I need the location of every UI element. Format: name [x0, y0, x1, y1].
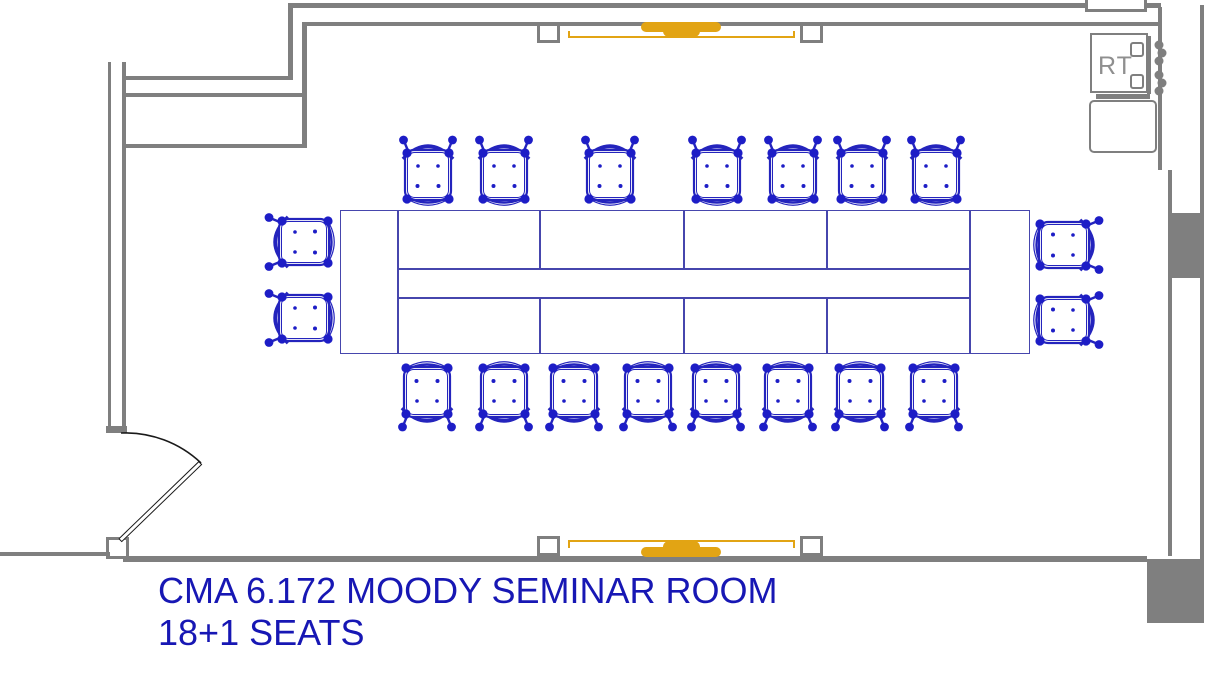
screen-housing-bottom-lip	[663, 541, 700, 548]
screen-housing-bottom	[641, 547, 721, 557]
wall-post-top-right	[800, 23, 823, 43]
chair	[904, 133, 968, 211]
rt-shelf-bar	[1096, 94, 1150, 100]
table-mid-line-upper	[397, 268, 970, 270]
chair	[685, 133, 749, 211]
wall-post-top-left	[537, 23, 560, 43]
chair	[396, 133, 460, 211]
chair	[578, 133, 642, 211]
seminar-table	[340, 210, 1030, 354]
chair	[828, 356, 892, 434]
chair	[684, 356, 748, 434]
chair	[902, 356, 966, 434]
chair	[542, 356, 606, 434]
table-divider-top-1	[539, 210, 541, 268]
table-end-divider-right	[969, 210, 971, 354]
room-title: CMA 6.172 MOODY SEMINAR ROOM 18+1 SEATS	[158, 570, 777, 654]
screen-housing-top-lip	[663, 30, 700, 37]
chair	[472, 133, 536, 211]
chair	[830, 133, 894, 211]
table-end-divider-left	[397, 210, 399, 354]
rt-lower-cabinet	[1089, 100, 1157, 153]
chair	[756, 356, 820, 434]
table-divider-bottom-2	[683, 297, 685, 354]
chair	[616, 356, 680, 434]
chair	[1028, 213, 1106, 277]
floor-plan: RT CMA 6.172 MOODY SEMINAR ROOM 18+1 SEA…	[0, 0, 1222, 675]
chair	[761, 133, 825, 211]
table-divider-bottom-1	[539, 297, 541, 354]
table-divider-top-2	[683, 210, 685, 268]
chair	[262, 286, 340, 350]
rt-label: RT	[1098, 52, 1133, 81]
chair	[472, 356, 536, 434]
chair	[395, 356, 459, 434]
chair	[262, 210, 340, 274]
chair	[1028, 288, 1106, 352]
room-title-line1: CMA 6.172 MOODY SEMINAR ROOM	[158, 570, 777, 612]
rt-connector-lower	[1130, 74, 1144, 89]
room-title-line2: 18+1 SEATS	[158, 612, 777, 654]
wall-anchor-detail-lower	[1150, 70, 1174, 96]
wall-post-bottom-right	[800, 536, 823, 556]
wall-anchor-detail-upper	[1150, 40, 1174, 66]
table-divider-bottom-3	[826, 297, 828, 354]
table-divider-top-3	[826, 210, 828, 268]
wall-post-bottom-left	[537, 536, 560, 556]
rt-connector-upper	[1130, 42, 1144, 57]
